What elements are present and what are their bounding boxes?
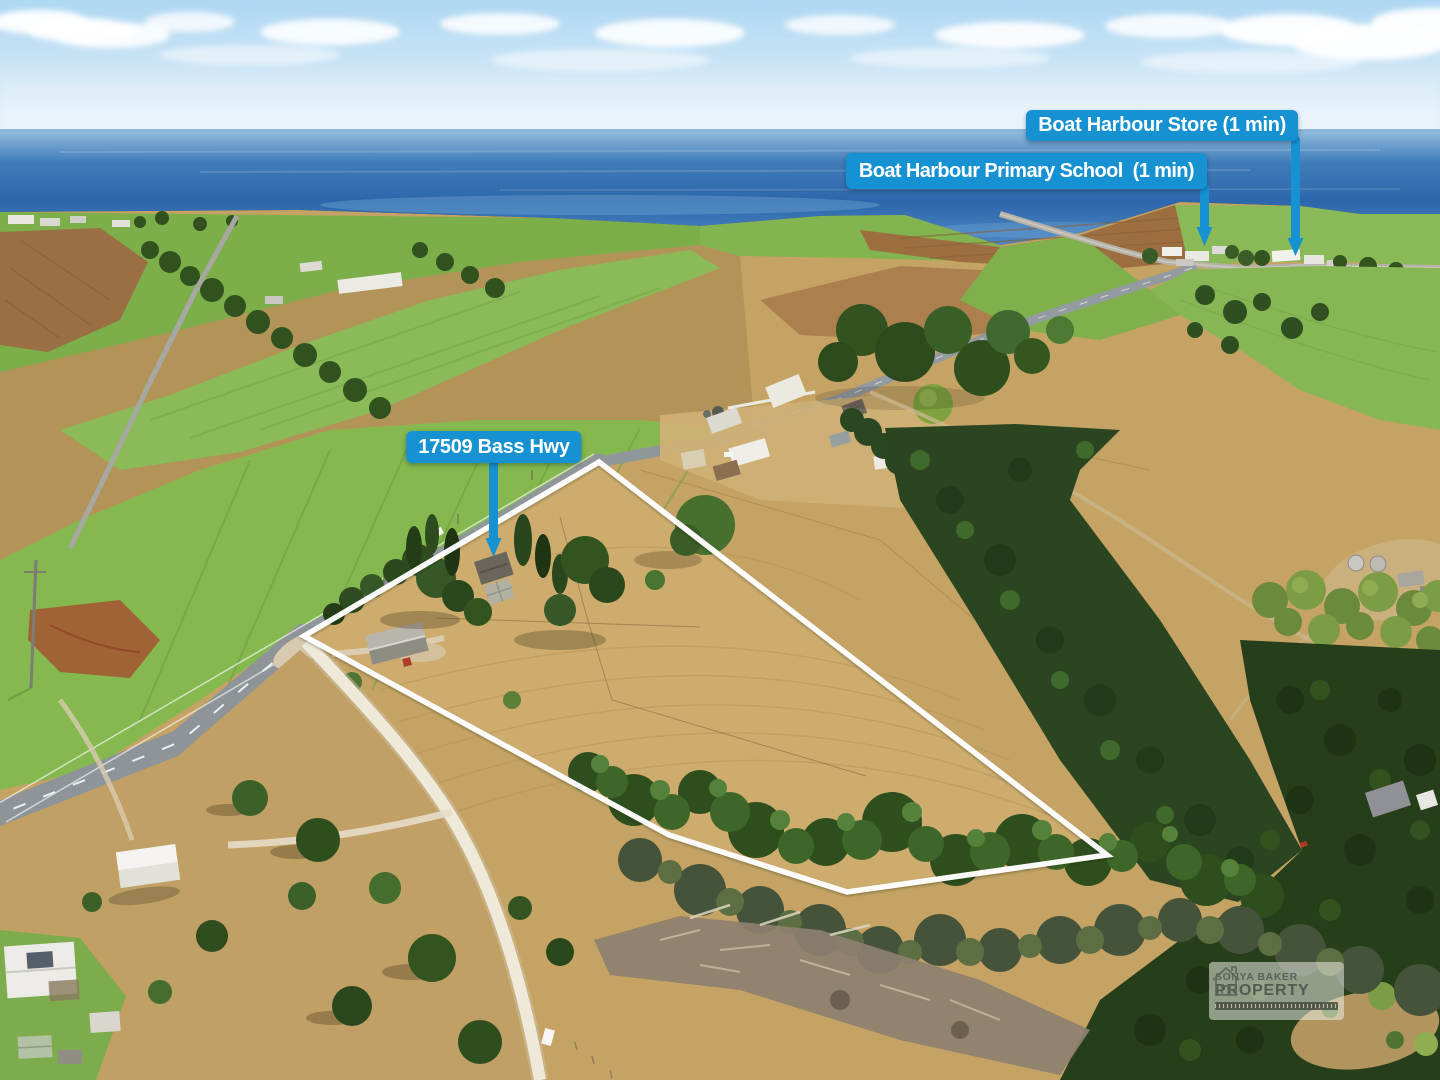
aerial-photo: Boat Harbour Store (1 min) Boat Harbour …: [0, 0, 1440, 1080]
address-pointer-line: [486, 462, 502, 557]
property-boundary-outline: [304, 462, 1107, 892]
annotation-overlay: [0, 0, 1440, 1080]
store-distance-label: Boat Harbour Store (1 min): [1026, 110, 1298, 141]
school-distance-label: Boat Harbour Primary School (1 min): [846, 153, 1207, 189]
school-pointer-line: [1197, 188, 1213, 246]
store-pointer-line: [1288, 140, 1304, 256]
agency-tagline-strip: [1215, 1002, 1338, 1010]
school-distance-label-text: Boat Harbour Primary School (1 min): [859, 160, 1194, 183]
property-address-label: 17509 Bass Hwy: [406, 431, 581, 463]
agency-watermark: SONYA BAKER PROPERTY: [1209, 962, 1344, 1020]
property-address-label-text: 17509 Bass Hwy: [418, 436, 569, 459]
store-distance-label-text: Boat Harbour Store (1 min): [1038, 114, 1286, 137]
house-icon: [1209, 962, 1243, 1000]
